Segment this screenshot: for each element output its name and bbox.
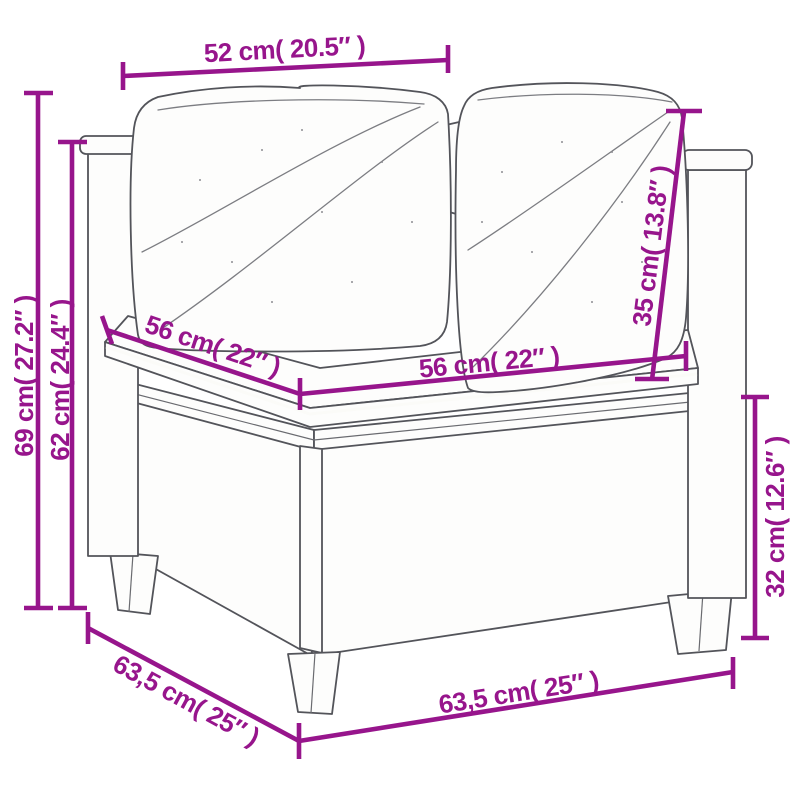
dimension-diagram: 52 cm( 20.5″ ) 69 cm( 27.2″ ) 62 cm( 24.… bbox=[0, 0, 800, 800]
base-corner-edge bbox=[300, 446, 322, 653]
right-post-cap bbox=[682, 150, 752, 170]
dimension-diagram-canvas: 52 cm( 20.5″ ) 69 cm( 27.2″ ) 62 cm( 24.… bbox=[0, 0, 800, 800]
dim-base-height-label: 32 cm( 12.6″ ) bbox=[760, 436, 790, 598]
leg-left bbox=[110, 552, 158, 614]
dim-armrest-height-label: 62 cm( 24.4″ ) bbox=[45, 299, 75, 461]
dim-overall-height-label: 69 cm( 27.2″ ) bbox=[9, 295, 39, 457]
back-cushion-left-body bbox=[131, 85, 451, 351]
back-cushion-left bbox=[131, 85, 451, 351]
